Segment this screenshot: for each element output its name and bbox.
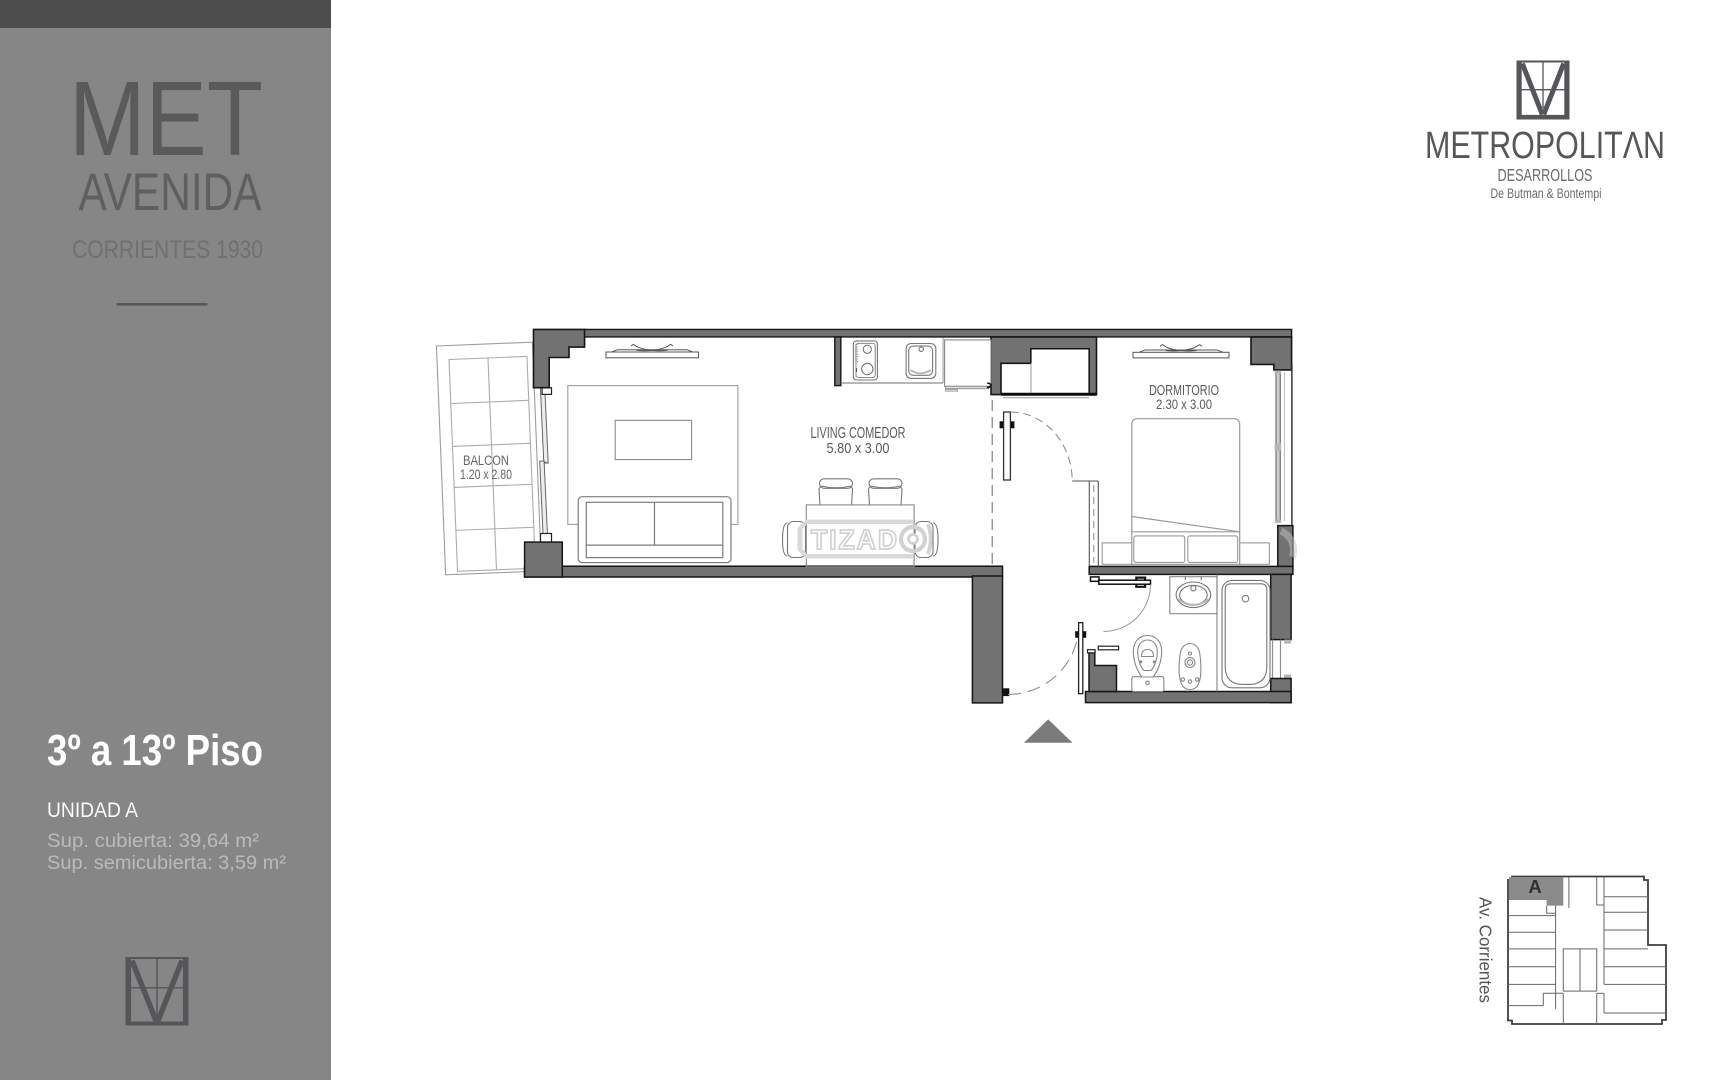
svg-text:A: A bbox=[1528, 876, 1541, 897]
svg-text:Sup. cubierta: 39,64 m²: Sup. cubierta: 39,64 m² bbox=[47, 830, 260, 852]
svg-text:DESARROLLOS: DESARROLLOS bbox=[1498, 165, 1593, 185]
svg-text:CORRIENTES 1930: CORRIENTES 1930 bbox=[72, 236, 263, 264]
svg-text:TIZAD: TIZAD bbox=[811, 524, 899, 555]
svg-text:1.20 x 2.80: 1.20 x 2.80 bbox=[460, 467, 512, 482]
svg-text:AVENIDA: AVENIDA bbox=[79, 163, 263, 222]
svg-text:3º a 13º Piso: 3º a 13º Piso bbox=[47, 726, 263, 775]
svg-text:5.80 x 3.00: 5.80 x 3.00 bbox=[827, 440, 890, 457]
svg-text:De Butman & Bontempi: De Butman & Bontempi bbox=[1491, 186, 1602, 201]
svg-text:Av. Corrientes: Av. Corrientes bbox=[1476, 897, 1496, 1003]
svg-text:UNIDAD A: UNIDAD A bbox=[47, 799, 138, 822]
svg-text:2.30 x 3.00: 2.30 x 3.00 bbox=[1156, 396, 1212, 412]
svg-text:Sup. semicubierta: 3,59 m²: Sup. semicubierta: 3,59 m² bbox=[47, 852, 287, 874]
svg-text:METROPOLITΛN: METROPOLITΛN bbox=[1425, 125, 1665, 167]
svg-text:BALCON: BALCON bbox=[463, 453, 509, 468]
svg-text:MET: MET bbox=[69, 60, 263, 178]
